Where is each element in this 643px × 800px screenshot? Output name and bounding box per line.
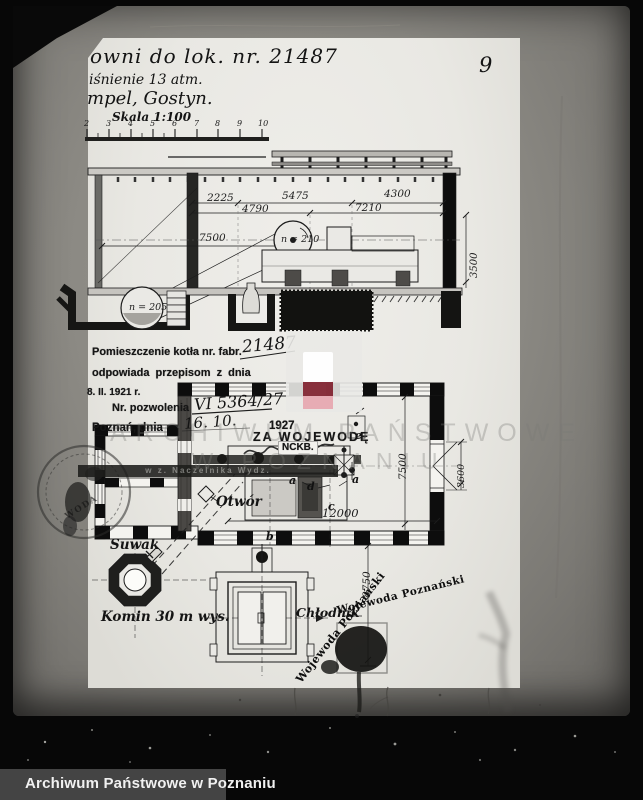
marker-a: a bbox=[352, 474, 359, 485]
otwor-label: Otwór bbox=[216, 496, 262, 510]
marker-b: b bbox=[266, 531, 274, 542]
suwak-label: Suwak bbox=[110, 539, 159, 553]
marker-d: d bbox=[307, 481, 315, 492]
dim-3500: 3500 bbox=[470, 253, 480, 278]
dim-5475: 5475 bbox=[282, 191, 309, 202]
scale-tick: 6 bbox=[172, 120, 177, 128]
scale-tick: 8 bbox=[215, 120, 220, 128]
dim-4300: 4300 bbox=[384, 189, 411, 200]
title-line-1: owni do lok. nr. 21487 bbox=[90, 46, 338, 66]
watermark-logo-red-dark bbox=[303, 382, 333, 396]
dim-12000: 12000 bbox=[322, 508, 359, 520]
watermark-logo-red-light bbox=[303, 396, 333, 409]
dim-7500-section: 7500 bbox=[199, 233, 226, 244]
scale-tick: 10 bbox=[258, 120, 268, 128]
dim-7210: 7210 bbox=[355, 203, 382, 214]
archive-caption-label: Archiwum Państwowe w Poznaniu bbox=[25, 776, 276, 791]
page-number: 9 bbox=[479, 55, 492, 76]
stamp-line-4: Nr. pozwolenia bbox=[112, 403, 189, 414]
scale-tick: 2 bbox=[84, 120, 89, 128]
dim-4790: 4790 bbox=[242, 204, 269, 215]
stamp-line-2: odpowiada przepisom z dnia bbox=[92, 368, 251, 379]
title-line-2: iśnienie 13 atm. bbox=[89, 73, 203, 87]
scale-tick: 7 bbox=[194, 120, 199, 128]
stamp-line-3: 8. II. 1921 r. bbox=[87, 388, 140, 398]
dim-2225: 2225 bbox=[207, 193, 234, 204]
watermark-text-line-1: ARCHIWUM PAŃSTWOWE bbox=[110, 421, 530, 446]
scale-tick: 3 bbox=[106, 120, 111, 128]
scale-tick: 5 bbox=[150, 120, 155, 128]
scale-tick: 4 bbox=[128, 120, 133, 128]
marker-a: a bbox=[289, 475, 296, 486]
stamp-line-1: Pomieszczenie kotła nr. fabr. bbox=[92, 347, 242, 358]
watermark-logo-white-square bbox=[303, 352, 333, 382]
flywheel-rpm: n = 210 bbox=[281, 235, 319, 245]
title-line-3: mpel, Gostyn. bbox=[87, 90, 213, 108]
pit-wheel-rpm: n = 205 bbox=[129, 303, 167, 313]
komin-label: Komin 30 m wys. bbox=[101, 611, 230, 625]
watermark-text-line-2: W POZNANIU bbox=[110, 450, 530, 473]
scale-tick: 9 bbox=[237, 120, 242, 128]
